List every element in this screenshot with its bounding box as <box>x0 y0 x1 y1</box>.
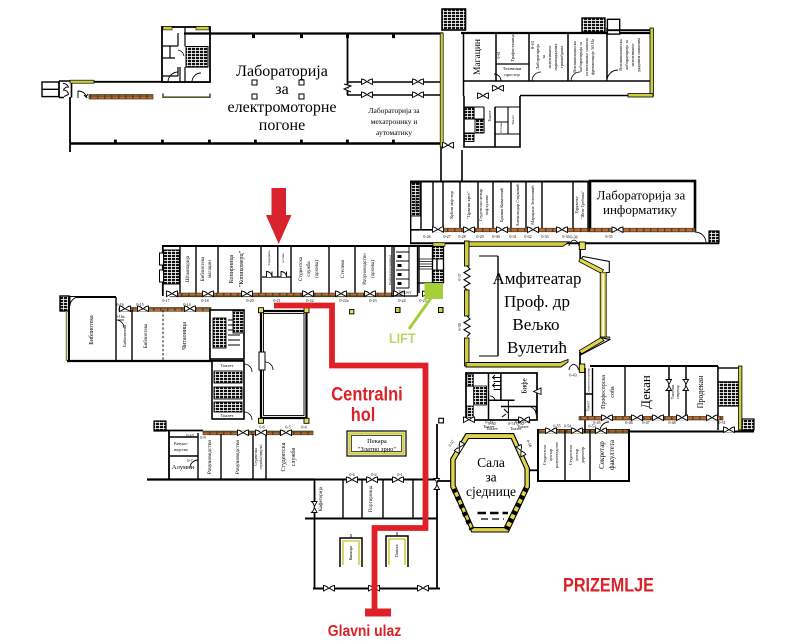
svg-text:0-55: 0-55 <box>553 424 560 429</box>
svg-text:Вељко: Вељко <box>512 315 559 334</box>
svg-text:0-54: 0-54 <box>564 424 571 429</box>
svg-text:за: за <box>275 81 288 98</box>
svg-text:0-5: 0-5 <box>285 425 290 430</box>
svg-text:Продекан: Продекан <box>696 375 705 408</box>
svg-text:0-10: 0-10 <box>186 433 193 438</box>
svg-text:Трафостаница: Трафостаница <box>510 34 515 61</box>
svg-text:0-18: 0-18 <box>201 298 208 303</box>
svg-text:PRIZEMLJE: PRIZEMLJE <box>563 575 654 597</box>
svg-text:0-16a: 0-16a <box>115 314 124 319</box>
svg-text:Удружење: Удружење <box>574 196 579 214</box>
svg-text:водство: водство <box>174 447 188 452</box>
svg-text:Портирница: Портирница <box>369 485 374 512</box>
svg-text:Тоалет: Тоалет <box>510 426 522 431</box>
svg-text:Секретар: Секретар <box>598 441 606 469</box>
svg-text:Амфитеатар: Амфитеатар <box>492 269 581 288</box>
svg-text:Високонапонска: Високонапонска <box>572 41 577 72</box>
svg-text:(архива): (архива) <box>371 260 376 278</box>
svg-text:0-29: 0-29 <box>476 234 483 239</box>
svg-text:центар: центар <box>548 449 553 461</box>
svg-text:0-22a: 0-22a <box>339 298 348 303</box>
svg-text:0-45: 0-45 <box>593 420 600 425</box>
svg-text:0-14: 0-14 <box>183 302 190 307</box>
svg-text:0-63: 0-63 <box>530 40 535 49</box>
svg-text:Маријана Зеленовић: Маријана Зеленовић <box>530 185 535 225</box>
svg-text:директор: директор <box>580 447 585 463</box>
svg-text:Тоалет: Тоалет <box>587 400 591 411</box>
svg-text:Технички: Технички <box>503 66 522 71</box>
svg-text:0-37: 0-37 <box>457 273 462 280</box>
svg-text:Студентска: Студентска <box>281 442 287 471</box>
svg-text:0-6: 0-6 <box>259 425 264 430</box>
svg-text:0-61: 0-61 <box>496 51 501 58</box>
svg-text:остава: остава <box>281 253 285 263</box>
svg-text:Лабораторија за: Лабораторија за <box>368 106 420 115</box>
svg-text:0-30: 0-30 <box>492 234 499 239</box>
svg-text:електромоторне: електромоторне <box>228 99 337 116</box>
svg-text:0-47: 0-47 <box>642 420 649 425</box>
svg-text:Александар Стојковић: Александар Стојковић <box>515 183 520 227</box>
svg-text:Студентски: Студентски <box>542 444 547 465</box>
svg-text:0-1: 0-1 <box>397 472 402 477</box>
svg-text:Бранко Ковачевић: Бранко Ковачевић <box>499 187 504 222</box>
svg-text:0-22: 0-22 <box>306 298 313 303</box>
svg-text:лабораторија за: лабораторија за <box>624 40 629 70</box>
svg-text:Штампарија: Штампарија <box>186 255 191 282</box>
svg-text:0-33: 0-33 <box>541 234 548 239</box>
svg-text:Библиотека: Библиотека <box>144 323 149 348</box>
svg-text:служба: служба <box>290 447 297 466</box>
svg-text:0-34: 0-34 <box>562 234 569 239</box>
svg-text:0-31: 0-31 <box>509 234 516 239</box>
svg-text:"Златно зрно": "Златно зрно" <box>358 446 397 453</box>
svg-text:Кућни мајстор: Кућни мајстор <box>449 190 454 218</box>
svg-text:Тоалет: Тоалет <box>221 413 234 418</box>
svg-text:Гардероба: Гардероба <box>413 196 418 215</box>
svg-text:hol: hol <box>351 405 376 426</box>
svg-text:0-38: 0-38 <box>457 323 462 330</box>
svg-text:0-4: 0-4 <box>349 472 354 477</box>
svg-text:Алумни: Алумни <box>172 464 195 471</box>
svg-text:сједнице: сједнице <box>466 484 516 499</box>
svg-text:Рачуноводство: Рачуноводство <box>363 253 368 285</box>
svg-text:(архива): (архива) <box>315 260 320 278</box>
svg-text:Бифе: Бифе <box>521 378 529 393</box>
svg-text:0-20: 0-20 <box>246 298 253 303</box>
svg-text:0-35: 0-35 <box>605 234 612 239</box>
svg-text:Тоалет: Тоалет <box>486 426 498 431</box>
svg-text:0-43: 0-43 <box>569 373 576 378</box>
svg-text:Лабораторија за: Лабораторија за <box>597 188 686 203</box>
svg-text:за: за <box>485 470 496 485</box>
svg-text:0-26: 0-26 <box>423 234 430 239</box>
svg-text:Тоалет: Тоалет <box>221 363 234 368</box>
svg-text:секретар: секретар <box>676 385 680 399</box>
svg-text:0-17: 0-17 <box>162 298 169 303</box>
svg-text:аутоматику: аутоматику <box>376 128 412 137</box>
svg-text:испитивање: испитивање <box>547 46 552 69</box>
svg-text:Рачуно-: Рачуно- <box>174 441 189 446</box>
svg-text:поф кухиње: поф кухиње <box>484 195 489 216</box>
svg-text:паровидалних: паровидалних <box>553 43 558 71</box>
svg-text:Лабораторија: Лабораторија <box>236 63 328 80</box>
svg-text:Библиотека: Библиотека <box>88 315 95 345</box>
svg-text:погоне: погоне <box>259 117 305 134</box>
svg-text:0-2: 0-2 <box>371 472 376 477</box>
svg-text:информатику: информатику <box>603 202 677 217</box>
svg-text:Тоалет: Тоалет <box>399 290 412 295</box>
svg-text:0-51: 0-51 <box>718 420 725 425</box>
svg-text:испитивање: испитивање <box>630 44 635 67</box>
svg-text:Остава: Остава <box>499 122 503 133</box>
svg-text:Студентска: Студентска <box>254 448 258 466</box>
svg-text:0-32: 0-32 <box>524 234 531 239</box>
svg-text:за: за <box>541 55 546 59</box>
svg-text:магацин: магацин <box>208 260 213 278</box>
svg-text:Тоалетни: Тоалетни <box>671 385 675 399</box>
svg-text:соба: соба <box>609 386 616 398</box>
svg-text:центар: центар <box>574 449 579 461</box>
svg-text:Магацин: Магацин <box>473 39 483 75</box>
svg-text:лабораторија за: лабораторија за <box>578 42 583 72</box>
svg-text:Библиотека: Библиотека <box>122 325 127 347</box>
svg-text:0-16: 0-16 <box>116 302 123 307</box>
svg-text:Студентски: Студентски <box>568 444 573 465</box>
svg-text:Стелеко: Стелеко <box>340 259 346 278</box>
svg-text:0-48: 0-48 <box>668 420 675 425</box>
svg-text:Библиотека: Библиотека <box>201 256 206 281</box>
svg-text:Гардероба: Гардероба <box>267 250 271 265</box>
svg-text:0-15: 0-15 <box>136 302 143 307</box>
svg-text:0-46: 0-46 <box>625 420 632 425</box>
svg-text:факултета: факултета <box>608 439 616 470</box>
svg-text:рачуноводство: рачуноводство <box>554 442 559 468</box>
svg-text:Сала: Сала <box>477 455 505 470</box>
svg-text:0-7: 0-7 <box>187 458 192 463</box>
svg-text:0-27: 0-27 <box>443 234 450 239</box>
svg-text:мехатронику и: мехатронику и <box>371 117 418 126</box>
svg-text:Читаоница: Читаоница <box>182 322 188 350</box>
svg-text:громобрана: громобрана <box>559 46 564 68</box>
svg-text:Тоалет: Тоалет <box>511 115 515 125</box>
svg-text:0-9: 0-9 <box>200 435 205 440</box>
svg-text:"Црвени крст": "Црвени крст" <box>466 191 471 219</box>
svg-text:0-24: 0-24 <box>398 298 405 303</box>
svg-text:Лабораторија: Лабораторија <box>535 44 540 70</box>
svg-text:простор: простор <box>504 72 520 77</box>
svg-text:Тоалет: Тоалет <box>487 110 492 122</box>
svg-text:Студентски центар: Студентски центар <box>478 189 483 221</box>
svg-text:Книжара: Книжара <box>349 545 353 560</box>
svg-text:0-28: 0-28 <box>458 234 465 239</box>
svg-text:Centralni: Centralni <box>331 385 403 406</box>
svg-text:0-23: 0-23 <box>369 298 376 303</box>
svg-text:Копирница: Копирница <box>229 254 235 283</box>
svg-text:0-21: 0-21 <box>273 298 280 303</box>
svg-text:служба (пријем): служба (пријем) <box>259 444 263 470</box>
svg-text:0-36: 0-36 <box>570 235 577 240</box>
svg-text:Glavni ulaz: Glavni ulaz <box>328 623 402 640</box>
svg-text:Студентска: Студентска <box>299 256 304 281</box>
svg-text:Проф. др: Проф. др <box>504 292 570 311</box>
svg-text:LIFT: LIFT <box>389 330 416 346</box>
svg-text:ударним напоном: ударним напоном <box>636 38 641 72</box>
svg-text:Вулетић: Вулетић <box>507 338 567 357</box>
svg-text:"Копикомерц": "Копикомерц" <box>239 250 245 287</box>
svg-text:Пошта: Пошта <box>394 545 399 558</box>
svg-text:фреквенције 50 Hz: фреквенције 50 Hz <box>590 39 595 75</box>
svg-text:Високонапонска: Високонапонска <box>618 39 623 70</box>
svg-text:Рачуноводство: Рачуноводство <box>207 439 213 474</box>
svg-text:испитивање напона: испитивање напона <box>584 38 589 75</box>
svg-text:служба: служба <box>307 261 312 277</box>
svg-text:"Жене Требиња": "Жене Требиња" <box>580 191 585 220</box>
svg-text:Студентски центар: Студентски центар <box>587 368 591 394</box>
svg-text:Рачуноводство: Рачуноводство <box>235 439 241 474</box>
svg-text:0-4: 0-4 <box>301 425 306 430</box>
svg-text:Кафетерија: Кафетерија <box>319 486 324 511</box>
svg-text:Пекара: Пекара <box>367 438 387 445</box>
svg-text:Декан: Декан <box>638 375 653 409</box>
svg-text:Професорска: Професорска <box>600 375 607 409</box>
